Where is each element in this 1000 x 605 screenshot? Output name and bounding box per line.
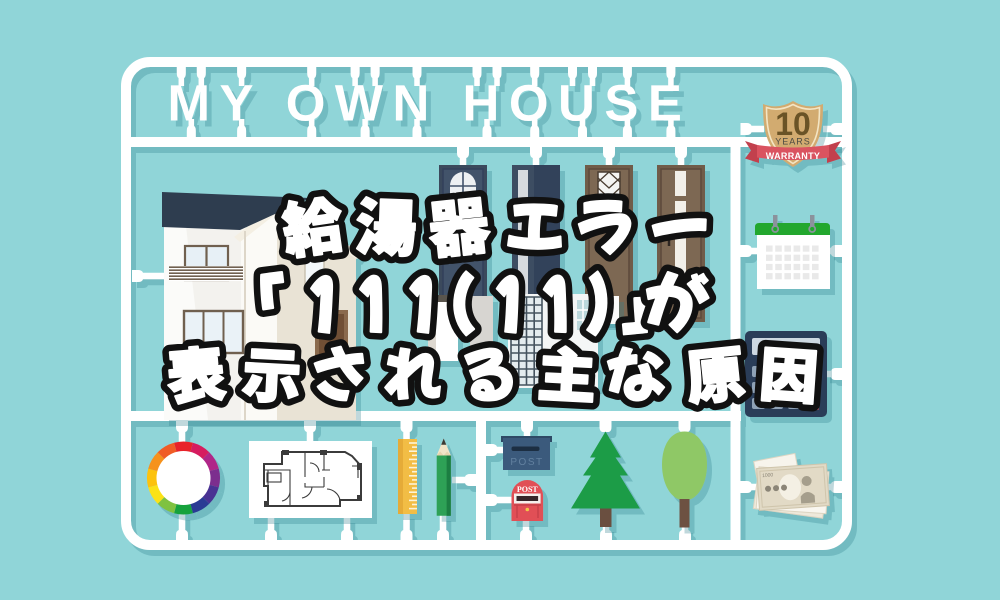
svg-text:WARRANTY: WARRANTY <box>766 151 820 161</box>
svg-text:MY OWN HOUSE: MY OWN HOUSE <box>168 75 692 132</box>
svg-text:POST: POST <box>510 457 543 468</box>
svg-text:POST: POST <box>517 485 539 494</box>
svg-text:YEARS: YEARS <box>775 137 811 147</box>
svg-text:1000: 1000 <box>762 472 774 479</box>
